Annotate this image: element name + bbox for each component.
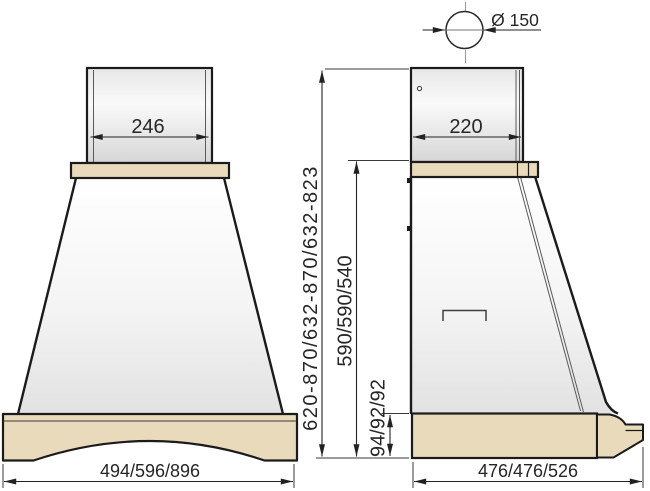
extension-lines (316, 69, 409, 458)
dim-label-depth: 476/476/526 (478, 461, 578, 481)
wall-bracket-upper (407, 178, 412, 183)
wall-bracket-lower (407, 226, 412, 231)
front-view: 246 494/596/896 (3, 68, 297, 488)
dim-label-front-width: 494/596/896 (100, 461, 200, 481)
dim-label-chimney-depth: 220 (449, 116, 482, 138)
side-valance (412, 414, 597, 459)
side-shelf-trim (411, 162, 538, 177)
side-valance-molding (597, 415, 643, 458)
side-hood-body (411, 177, 617, 414)
dim-label-chimney-width: 246 (131, 116, 164, 138)
dim-label-duct-diameter: Ø 150 (491, 10, 539, 30)
technical-drawing: 246 494/596/896 Ø 150 6 (0, 0, 650, 491)
side-chimney (411, 68, 523, 162)
dim-label-hood-height: 590/590/540 (335, 255, 357, 366)
drawing-canvas: 246 494/596/896 Ø 150 6 (0, 0, 650, 491)
front-hood-body (18, 178, 283, 414)
side-view: Ø 150 (407, 2, 643, 458)
dim-label-total-height: 620-870/632-870/632-823 (300, 165, 322, 431)
screw-icon (417, 86, 421, 90)
front-shelf-trim (71, 163, 229, 178)
dim-label-valance-height: 94/92/92 (368, 379, 390, 457)
